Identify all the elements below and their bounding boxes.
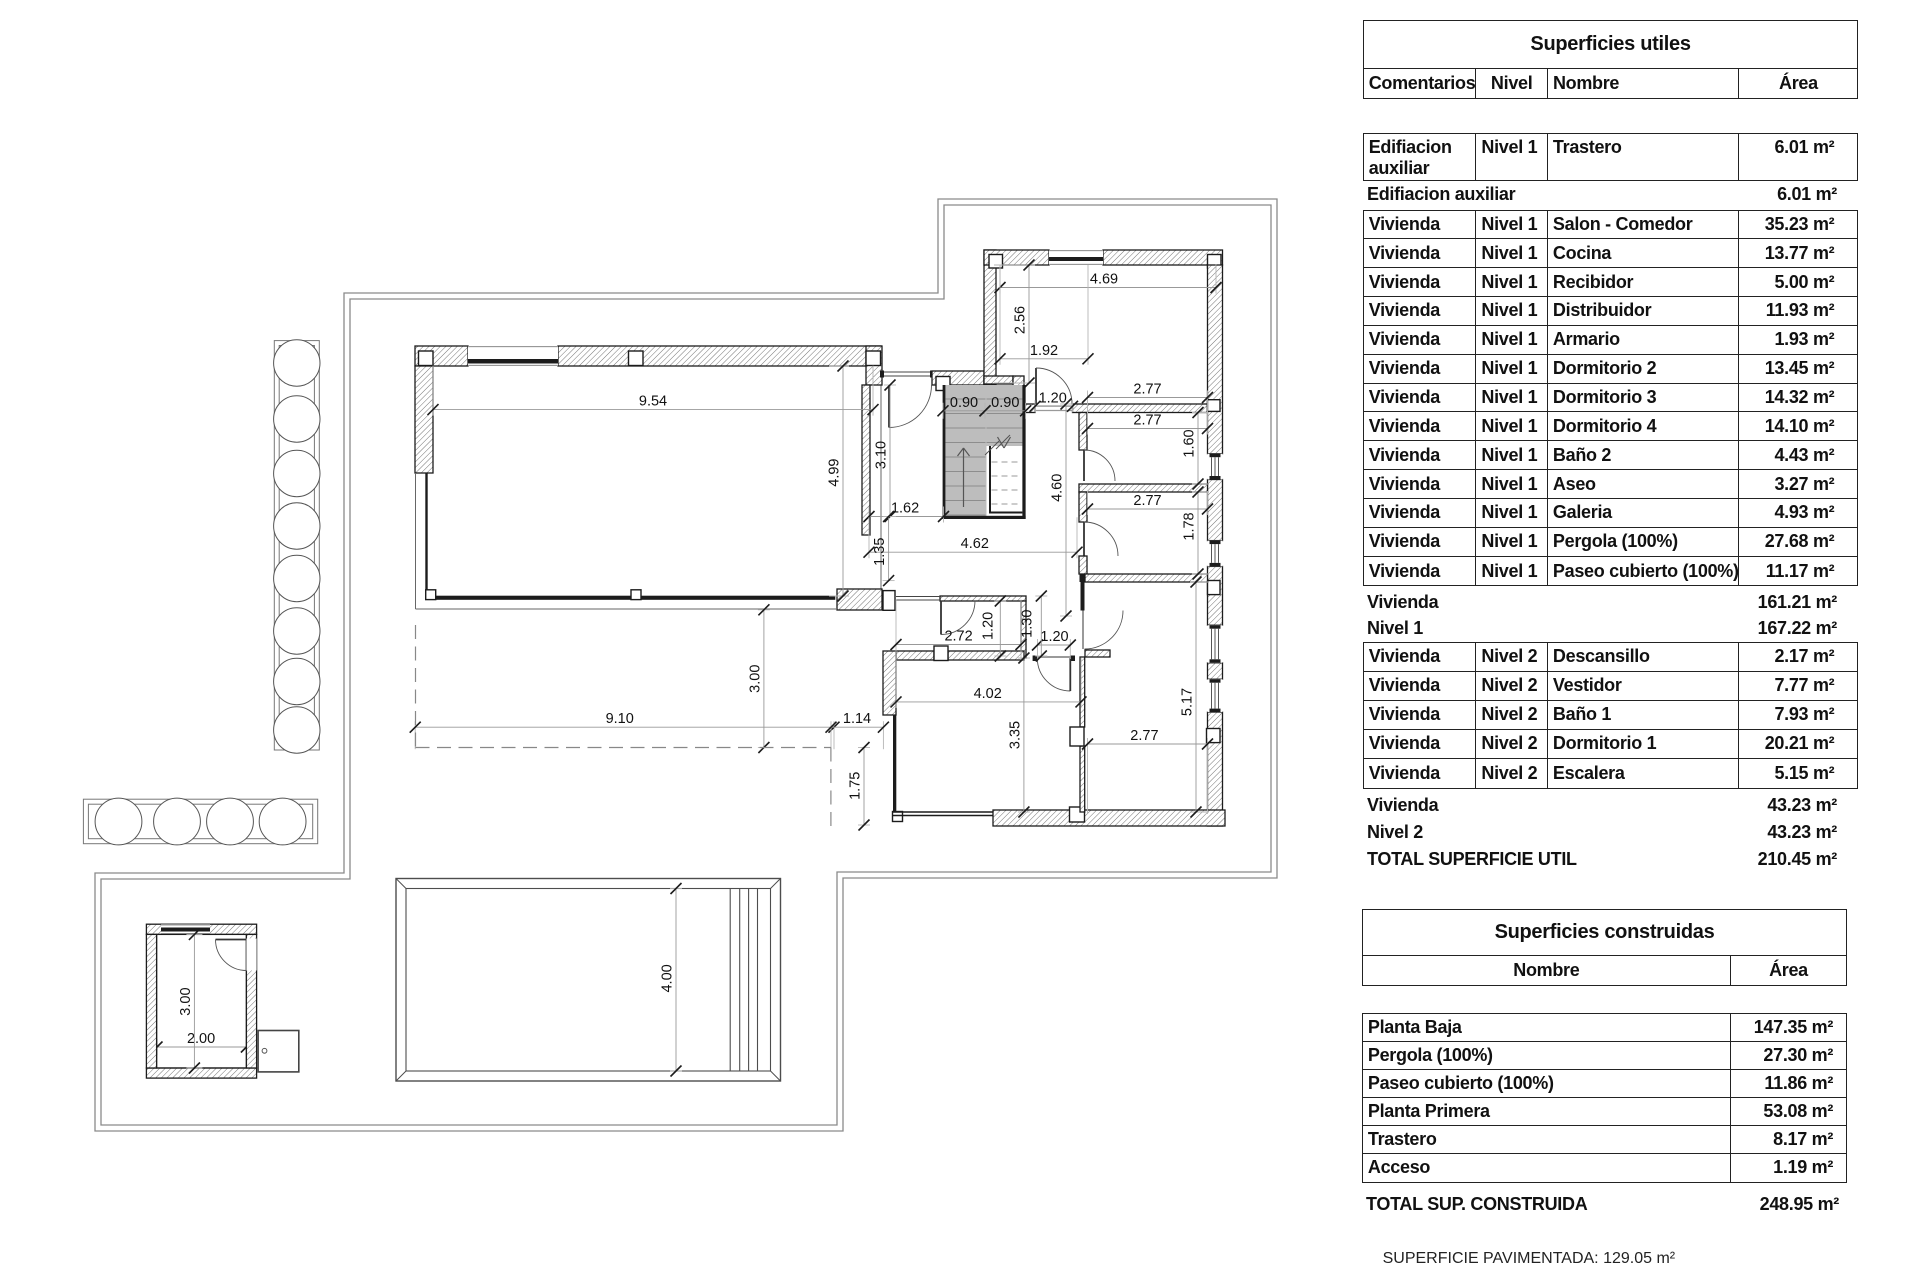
svg-text:5.17: 5.17 <box>1180 688 1196 716</box>
svg-text:4.02: 4.02 <box>974 686 1002 702</box>
svg-text:3.35: 3.35 <box>1007 721 1023 749</box>
svg-text:1.30: 1.30 <box>1020 610 1036 638</box>
svg-text:4.69: 4.69 <box>1090 272 1118 288</box>
svg-text:4.62: 4.62 <box>961 536 989 552</box>
svg-text:9.54: 9.54 <box>639 394 667 410</box>
svg-text:2.77: 2.77 <box>1133 493 1161 509</box>
svg-text:4.99: 4.99 <box>827 458 843 486</box>
svg-text:1.78: 1.78 <box>1182 512 1198 540</box>
svg-text:1.62: 1.62 <box>891 501 919 517</box>
svg-text:1.14: 1.14 <box>843 711 871 727</box>
svg-text:3.10: 3.10 <box>874 441 890 469</box>
svg-text:2.56: 2.56 <box>1013 306 1029 334</box>
svg-text:2.77: 2.77 <box>1133 382 1161 398</box>
svg-text:3.00: 3.00 <box>747 665 763 693</box>
svg-text:3.00: 3.00 <box>178 987 194 1015</box>
svg-text:0.90: 0.90 <box>991 395 1019 411</box>
svg-text:0.90: 0.90 <box>950 395 978 411</box>
svg-text:4.60: 4.60 <box>1050 474 1066 502</box>
svg-text:2.77: 2.77 <box>1130 728 1158 744</box>
svg-text:1.20: 1.20 <box>1040 629 1068 645</box>
svg-text:1.75: 1.75 <box>848 772 864 800</box>
svg-text:4.00: 4.00 <box>660 964 676 992</box>
svg-text:9.10: 9.10 <box>606 711 634 727</box>
svg-text:1.20: 1.20 <box>981 612 997 640</box>
svg-text:1.35: 1.35 <box>872 538 888 566</box>
svg-text:1.60: 1.60 <box>1182 429 1198 457</box>
svg-text:2.72: 2.72 <box>944 629 972 645</box>
svg-text:2.77: 2.77 <box>1133 413 1161 429</box>
svg-text:2.00: 2.00 <box>187 1031 215 1047</box>
svg-text:1.92: 1.92 <box>1030 343 1058 359</box>
